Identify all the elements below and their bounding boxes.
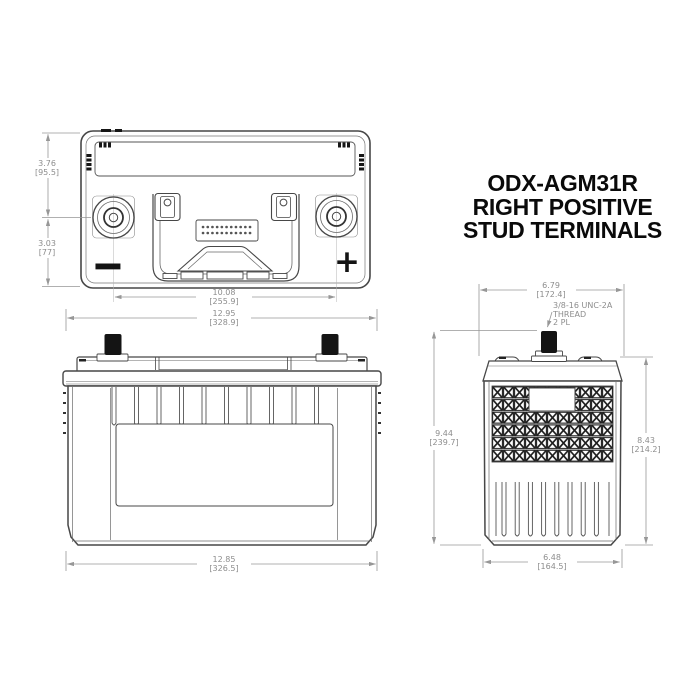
- dim-container-width: 6.48 [164.5]: [527, 553, 577, 571]
- dim-terminal-offset-bottom: 3.03 [77]: [26, 239, 68, 257]
- thread-qty: 2 PL: [553, 319, 612, 328]
- front-label-area: [116, 424, 333, 506]
- dim-mm: [164.5]: [527, 562, 577, 571]
- thread-callout-leader: [548, 312, 553, 327]
- side-view-drawing: [483, 331, 622, 545]
- front-view-drawing: [63, 334, 381, 545]
- dim-mm: [214.2]: [622, 445, 670, 454]
- thread-callout: 3/8-16 UNC-2A THREAD 2 PL: [553, 302, 612, 328]
- date-code-plate: [196, 220, 258, 241]
- battery-dimension-drawing: ODX-AGM31R RIGHT POSITIVE STUD TERMINALS…: [0, 0, 700, 700]
- dim-lid-width: 6.79 [172.4]: [526, 281, 576, 299]
- title-model: ODX-AGM31R: [440, 172, 685, 196]
- dim-terminal-offset-top: 3.76 [95.5]: [26, 159, 68, 177]
- negative-terminal-mark: −: [91, 235, 124, 294]
- drawing-title: ODX-AGM31R RIGHT POSITIVE STUD TERMINALS: [440, 172, 685, 243]
- dim-inches: 9.44: [420, 429, 468, 438]
- dim-inches: 10.08: [199, 288, 249, 297]
- dim-mm: [239.7]: [420, 438, 468, 447]
- dim-terminal-spacing: 10.08 [255.9]: [199, 288, 249, 306]
- dim-mm: [328.9]: [199, 318, 249, 327]
- drawing-linework: [0, 0, 700, 700]
- dim-inches: 3.03: [26, 239, 68, 248]
- side-label-area: [529, 388, 575, 411]
- dim-inches: 12.95: [199, 309, 249, 318]
- dim-overall-length: 12.95 [328.9]: [199, 309, 249, 327]
- dim-inches: 6.48: [527, 553, 577, 562]
- positive-terminal-mark: +: [334, 244, 360, 280]
- dim-overall-height: 9.44 [239.7]: [420, 429, 468, 447]
- dim-mm: [95.5]: [26, 168, 68, 177]
- dim-inches: 12.85: [199, 555, 249, 564]
- title-line3: STUD TERMINALS: [440, 219, 685, 243]
- dim-container-length: 12.85 [326.5]: [199, 555, 249, 573]
- dim-inches: 8.43: [622, 436, 670, 445]
- dim-inches: 6.79: [526, 281, 576, 290]
- dim-mm: [172.4]: [526, 290, 576, 299]
- dim-mm: [326.5]: [199, 564, 249, 573]
- dim-container-height: 8.43 [214.2]: [622, 436, 670, 454]
- dim-mm: [77]: [26, 248, 68, 257]
- dim-mm: [255.9]: [199, 297, 249, 306]
- side-terminal-post: [532, 331, 567, 362]
- dim-inches: 3.76: [26, 159, 68, 168]
- title-line2: RIGHT POSITIVE: [440, 196, 685, 220]
